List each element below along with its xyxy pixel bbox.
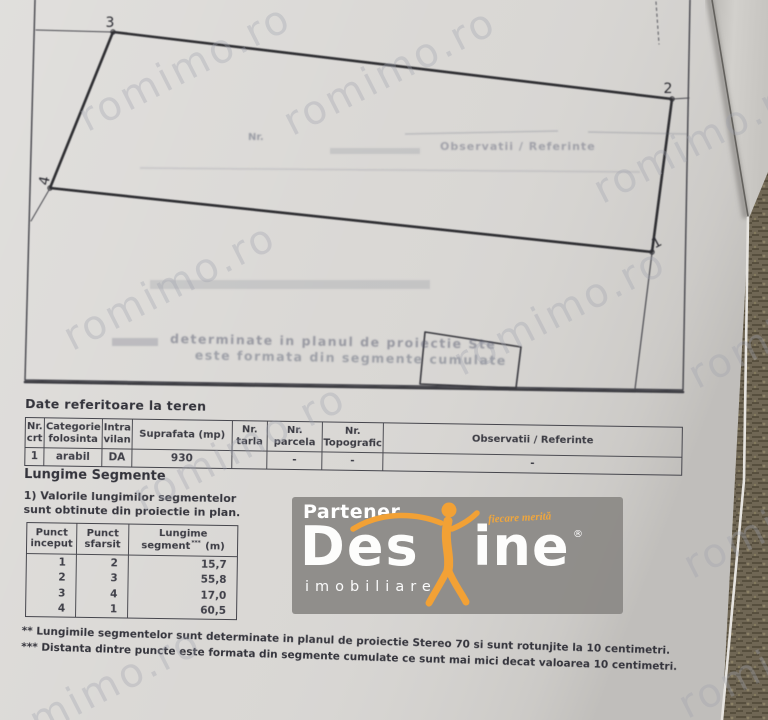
teren-table: Nr. crt Categorie folosinta Intra vilan … — [24, 417, 683, 476]
col-header-nr-parcela: Nr. parcela — [267, 422, 322, 453]
seg2-start: 2 — [26, 570, 76, 586]
seg2-end: 3 — [76, 570, 128, 586]
col-header-nr-topografic: Nr. Topografic — [322, 422, 383, 453]
document-content: Date referitoare la teren Nr. crt Catego… — [0, 0, 768, 720]
teren-section-heading: Date referitoare la teren — [25, 396, 206, 414]
lungime-unit: (m) — [205, 541, 225, 552]
seg3-start: 3 — [26, 585, 76, 601]
seg4-length: 60,5 — [128, 602, 236, 619]
seg1-end: 2 — [77, 555, 129, 571]
col-header-punct-sfarsit: Punct sfarsit — [77, 524, 129, 556]
scanned-cadastral-document-photo: 3 2 1 4 Nr. Observatii / Referinte deter… — [0, 0, 768, 720]
cell-nr-crt: 1 — [25, 448, 44, 465]
seg4-end: 1 — [76, 601, 128, 617]
cell-nr-parcela: - — [267, 452, 322, 470]
col-header-punct-inceput: Punct inceput — [27, 523, 77, 555]
lungime-superscript: *** — [191, 539, 201, 546]
segment-row-4: 4 1 60,5 — [26, 601, 236, 620]
segments-section-heading: Lungime Segmente — [24, 467, 166, 484]
segments-table-header-row: Punct inceput Punct sfarsit Lungime segm… — [27, 523, 237, 557]
seg1-length: 15,7 — [129, 556, 237, 573]
seg3-end: 4 — [76, 586, 128, 602]
seg1-start: 1 — [27, 554, 77, 570]
col-header-observatii: Observatii / Referinte — [383, 423, 681, 457]
seg3-length: 17,0 — [128, 587, 236, 604]
col-header-categorie: Categorie folosinta — [45, 418, 103, 449]
seg4-start: 4 — [26, 601, 76, 617]
cell-observatii: - — [383, 453, 681, 474]
segments-note-line2: sunt obtinute din proiectie in plan. — [23, 503, 240, 520]
segments-table: Punct inceput Punct sfarsit Lungime segm… — [25, 522, 238, 620]
cell-suprafata: 930 — [132, 450, 232, 468]
cell-categorie: arabil — [44, 448, 102, 466]
seg2-length: 55,8 — [128, 571, 236, 588]
lungime-line1: Lungime — [159, 528, 208, 540]
cell-nr-tarla — [232, 451, 267, 469]
cell-intravilan: DA — [102, 449, 132, 466]
col-header-intravilan: Intra vilan — [103, 419, 133, 449]
lungime-line2: segment — [141, 540, 190, 552]
col-header-nr-tarla: Nr. tarla — [232, 421, 267, 452]
col-header-suprafata: Suprafata (mp) — [132, 420, 232, 451]
col-header-nr-crt: Nr. crt — [26, 418, 45, 448]
footnotes: ** Lungimile segmentelor sunt determinat… — [21, 624, 734, 677]
segments-note: 1) Valorile lungimilor segmentelor sunt … — [23, 489, 240, 520]
col-header-lungime: Lungime segment*** (m) — [129, 525, 237, 558]
cell-nr-topografic: - — [322, 452, 383, 470]
